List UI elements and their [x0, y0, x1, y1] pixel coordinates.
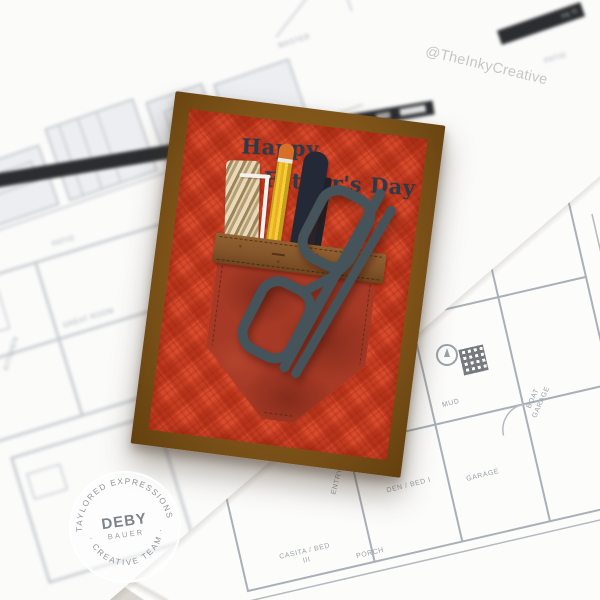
- plaid-panel: Happy Father's Day: [148, 109, 427, 460]
- photo-scene: MUD BOAT GARAGE GARAGE DEN / BED I ENTRY…: [0, 0, 600, 600]
- greeting-card: Happy Father's Day: [131, 91, 446, 478]
- pencil-ferrule: [277, 158, 292, 164]
- eyeglasses: [231, 166, 408, 403]
- area-stat-label: sq ft: [560, 7, 579, 19]
- area-stat-bar: sq ft: [497, 2, 585, 45]
- creative-team-badge: TAYLORED EXPRESSIONS · CREATIVE TEAM · D…: [58, 460, 191, 593]
- room-label-patio-2: PATIO: [543, 52, 567, 65]
- compass-icon: [436, 344, 458, 366]
